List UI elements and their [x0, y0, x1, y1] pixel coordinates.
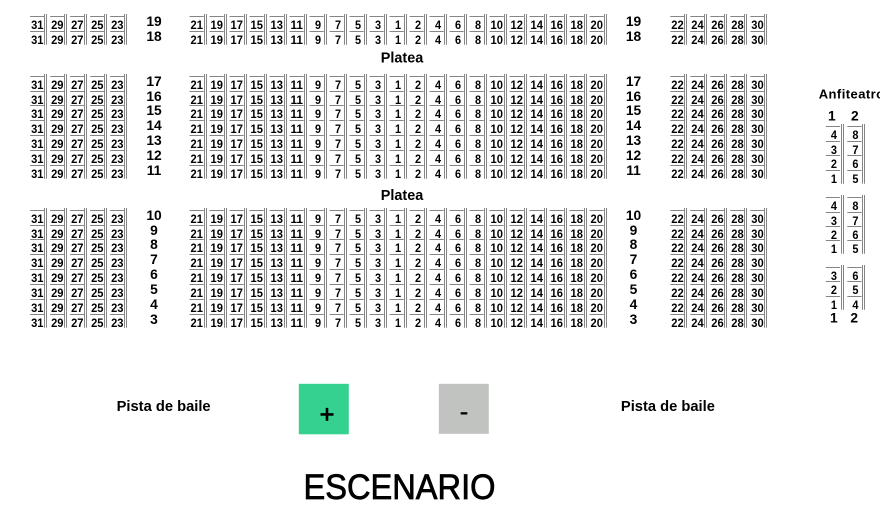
svg-text:2: 2 [415, 78, 421, 92]
svg-text:30: 30 [751, 256, 764, 270]
svg-text:22: 22 [671, 107, 684, 121]
svg-text:17: 17 [231, 286, 244, 300]
svg-text:4: 4 [435, 256, 441, 270]
svg-text:6: 6 [455, 227, 461, 241]
svg-text:25: 25 [91, 316, 104, 330]
svg-text:10: 10 [491, 152, 504, 166]
svg-text:14: 14 [531, 78, 544, 92]
svg-text:31: 31 [31, 167, 44, 181]
svg-text:31: 31 [31, 227, 44, 241]
svg-text:6: 6 [455, 93, 461, 107]
svg-text:17: 17 [231, 152, 244, 166]
svg-text:5: 5 [355, 271, 361, 285]
svg-text:25: 25 [91, 271, 104, 285]
svg-text:31: 31 [31, 33, 44, 47]
svg-text:12: 12 [511, 241, 524, 255]
svg-text:27: 27 [71, 137, 84, 151]
svg-text:2: 2 [415, 18, 421, 32]
svg-text:21: 21 [191, 33, 204, 47]
svg-text:24: 24 [691, 152, 704, 166]
svg-text:7: 7 [335, 18, 341, 32]
svg-text:16: 16 [551, 316, 564, 330]
svg-text:28: 28 [731, 33, 744, 47]
svg-text:4: 4 [435, 107, 441, 121]
svg-text:7: 7 [335, 167, 341, 181]
svg-text:21: 21 [191, 212, 204, 226]
svg-text:22: 22 [671, 316, 684, 330]
svg-text:30: 30 [751, 152, 764, 166]
svg-text:4: 4 [435, 227, 441, 241]
svg-text:31: 31 [31, 212, 44, 226]
svg-text:15: 15 [251, 167, 264, 181]
svg-text:19: 19 [211, 227, 224, 241]
svg-text:9: 9 [315, 122, 321, 136]
svg-text:18: 18 [571, 316, 584, 330]
svg-text:1: 1 [395, 152, 401, 166]
svg-text:23: 23 [111, 122, 124, 136]
svg-text:14: 14 [531, 122, 544, 136]
svg-text:15: 15 [251, 107, 264, 121]
svg-text:28: 28 [731, 107, 744, 121]
svg-text:8: 8 [475, 241, 481, 255]
svg-text:29: 29 [51, 107, 64, 121]
svg-text:23: 23 [111, 33, 124, 47]
svg-text:20: 20 [591, 212, 604, 226]
svg-text:27: 27 [71, 107, 84, 121]
svg-text:23: 23 [111, 316, 124, 330]
svg-text:11: 11 [291, 316, 304, 330]
svg-text:3: 3 [375, 78, 381, 92]
svg-text:27: 27 [71, 256, 84, 270]
svg-text:8: 8 [475, 286, 481, 300]
svg-text:12: 12 [626, 148, 642, 163]
svg-text:27: 27 [71, 93, 84, 107]
svg-text:13: 13 [271, 271, 284, 285]
svg-text:16: 16 [551, 256, 564, 270]
svg-text:24: 24 [691, 33, 704, 47]
svg-text:4: 4 [435, 286, 441, 300]
svg-text:12: 12 [511, 256, 524, 270]
svg-text:5: 5 [355, 316, 361, 330]
svg-text:18: 18 [571, 286, 584, 300]
svg-text:6: 6 [455, 152, 461, 166]
svg-text:2: 2 [415, 167, 421, 181]
svg-text:9: 9 [315, 241, 321, 255]
svg-text:24: 24 [691, 271, 704, 285]
svg-text:20: 20 [591, 286, 604, 300]
svg-text:16: 16 [626, 89, 642, 104]
svg-text:10: 10 [491, 93, 504, 107]
svg-text:17: 17 [231, 256, 244, 270]
svg-text:16: 16 [551, 212, 564, 226]
svg-text:20: 20 [591, 227, 604, 241]
svg-text:14: 14 [531, 301, 544, 315]
svg-text:14: 14 [531, 137, 544, 151]
svg-text:16: 16 [551, 286, 564, 300]
svg-text:27: 27 [71, 167, 84, 181]
svg-text:1: 1 [395, 167, 401, 181]
svg-text:18: 18 [571, 212, 584, 226]
svg-text:9: 9 [315, 167, 321, 181]
svg-text:27: 27 [71, 122, 84, 136]
svg-text:21: 21 [191, 152, 204, 166]
svg-text:5: 5 [355, 107, 361, 121]
svg-text:22: 22 [671, 33, 684, 47]
svg-text:11: 11 [291, 227, 304, 241]
svg-text:19: 19 [211, 78, 224, 92]
svg-text:3: 3 [831, 214, 837, 228]
svg-text:2: 2 [415, 241, 421, 255]
svg-text:15: 15 [251, 78, 264, 92]
svg-text:29: 29 [51, 93, 64, 107]
svg-text:29: 29 [51, 286, 64, 300]
svg-text:19: 19 [211, 122, 224, 136]
svg-text:6: 6 [455, 33, 461, 47]
svg-text:5: 5 [355, 137, 361, 151]
svg-text:23: 23 [111, 301, 124, 315]
svg-text:2: 2 [415, 122, 421, 136]
svg-text:1: 1 [395, 301, 401, 315]
svg-text:13: 13 [271, 301, 284, 315]
svg-text:5: 5 [355, 78, 361, 92]
svg-text:12: 12 [511, 107, 524, 121]
svg-text:19: 19 [146, 14, 162, 29]
svg-text:29: 29 [51, 316, 64, 330]
svg-text:31: 31 [31, 241, 44, 255]
svg-text:24: 24 [691, 167, 704, 181]
svg-text:4: 4 [435, 152, 441, 166]
svg-text:16: 16 [551, 301, 564, 315]
svg-text:5: 5 [355, 167, 361, 181]
svg-text:30: 30 [751, 122, 764, 136]
svg-text:1: 1 [828, 109, 836, 124]
svg-text:21: 21 [191, 241, 204, 255]
svg-text:8: 8 [475, 212, 481, 226]
svg-text:27: 27 [71, 33, 84, 47]
svg-text:12: 12 [511, 137, 524, 151]
svg-text:23: 23 [111, 241, 124, 255]
svg-text:12: 12 [511, 316, 524, 330]
svg-text:18: 18 [571, 78, 584, 92]
svg-text:11: 11 [291, 167, 304, 181]
svg-text:7: 7 [335, 137, 341, 151]
svg-text:8: 8 [475, 122, 481, 136]
svg-text:14: 14 [531, 316, 544, 330]
svg-text:30: 30 [751, 167, 764, 181]
svg-text:30: 30 [751, 212, 764, 226]
svg-text:6: 6 [852, 269, 858, 283]
svg-text:29: 29 [51, 152, 64, 166]
svg-text:31: 31 [31, 152, 44, 166]
svg-text:9: 9 [315, 18, 321, 32]
svg-text:19: 19 [211, 93, 224, 107]
svg-text:18: 18 [571, 301, 584, 315]
svg-text:18: 18 [571, 271, 584, 285]
svg-text:22: 22 [671, 286, 684, 300]
svg-text:19: 19 [211, 18, 224, 32]
svg-text:26: 26 [711, 78, 724, 92]
svg-text:30: 30 [751, 241, 764, 255]
svg-text:30: 30 [751, 78, 764, 92]
svg-text:19: 19 [626, 14, 642, 29]
svg-text:22: 22 [671, 122, 684, 136]
svg-text:Anfiteatro: Anfiteatro [819, 86, 880, 101]
svg-text:17: 17 [231, 227, 244, 241]
svg-text:31: 31 [31, 93, 44, 107]
svg-text:29: 29 [51, 122, 64, 136]
svg-text:31: 31 [31, 256, 44, 270]
svg-text:3: 3 [375, 286, 381, 300]
svg-text:16: 16 [551, 18, 564, 32]
svg-text:10: 10 [491, 301, 504, 315]
svg-text:8: 8 [852, 199, 858, 213]
svg-text:21: 21 [191, 256, 204, 270]
svg-text:3: 3 [831, 269, 837, 283]
svg-text:15: 15 [251, 122, 264, 136]
svg-text:6: 6 [150, 267, 158, 282]
svg-text:11: 11 [291, 137, 304, 151]
svg-text:11: 11 [626, 163, 641, 178]
svg-text:9: 9 [315, 271, 321, 285]
svg-text:17: 17 [231, 122, 244, 136]
svg-text:14: 14 [531, 227, 544, 241]
svg-text:6: 6 [455, 18, 461, 32]
svg-text:14: 14 [531, 167, 544, 181]
svg-text:3: 3 [375, 316, 381, 330]
svg-text:22: 22 [671, 152, 684, 166]
svg-text:7: 7 [852, 143, 858, 157]
svg-text:26: 26 [711, 227, 724, 241]
svg-text:5: 5 [852, 283, 858, 297]
svg-text:6: 6 [455, 301, 461, 315]
svg-text:31: 31 [31, 316, 44, 330]
svg-text:8: 8 [475, 93, 481, 107]
svg-text:21: 21 [191, 78, 204, 92]
svg-text:10: 10 [626, 208, 642, 223]
svg-text:12: 12 [511, 167, 524, 181]
svg-text:10: 10 [491, 316, 504, 330]
svg-text:2: 2 [415, 256, 421, 270]
svg-text:28: 28 [731, 212, 744, 226]
svg-text:11: 11 [291, 122, 304, 136]
svg-text:5: 5 [355, 33, 361, 47]
svg-text:5: 5 [355, 152, 361, 166]
svg-text:14: 14 [531, 241, 544, 255]
svg-text:25: 25 [91, 301, 104, 315]
svg-text:3: 3 [375, 271, 381, 285]
svg-text:9: 9 [150, 223, 158, 238]
svg-text:21: 21 [191, 137, 204, 151]
svg-text:31: 31 [31, 122, 44, 136]
svg-text:8: 8 [475, 33, 481, 47]
svg-text:1: 1 [395, 241, 401, 255]
svg-text:30: 30 [751, 286, 764, 300]
svg-text:19: 19 [211, 286, 224, 300]
svg-text:4: 4 [435, 18, 441, 32]
svg-text:20: 20 [591, 316, 604, 330]
svg-text:5: 5 [852, 242, 858, 256]
svg-text:7: 7 [335, 271, 341, 285]
svg-text:15: 15 [251, 33, 264, 47]
svg-text:11: 11 [291, 93, 304, 107]
svg-text:14: 14 [531, 107, 544, 121]
svg-text:6: 6 [455, 316, 461, 330]
svg-text:13: 13 [271, 316, 284, 330]
svg-text:3: 3 [375, 93, 381, 107]
svg-text:28: 28 [731, 167, 744, 181]
svg-text:26: 26 [711, 256, 724, 270]
svg-text:12: 12 [511, 93, 524, 107]
svg-text:2: 2 [415, 33, 421, 47]
svg-text:16: 16 [551, 33, 564, 47]
svg-text:15: 15 [251, 316, 264, 330]
svg-text:7: 7 [335, 152, 341, 166]
svg-text:25: 25 [91, 167, 104, 181]
svg-text:16: 16 [551, 78, 564, 92]
svg-text:28: 28 [731, 78, 744, 92]
svg-text:20: 20 [591, 33, 604, 47]
svg-text:29: 29 [51, 271, 64, 285]
svg-text:17: 17 [231, 78, 244, 92]
svg-text:9: 9 [315, 212, 321, 226]
svg-text:2: 2 [415, 212, 421, 226]
svg-text:28: 28 [731, 286, 744, 300]
svg-text:24: 24 [691, 227, 704, 241]
svg-text:20: 20 [591, 78, 604, 92]
svg-text:4: 4 [435, 137, 441, 151]
svg-text:8: 8 [630, 237, 638, 252]
svg-text:27: 27 [71, 301, 84, 315]
svg-text:26: 26 [711, 212, 724, 226]
svg-text:22: 22 [671, 256, 684, 270]
svg-text:6: 6 [455, 137, 461, 151]
svg-text:5: 5 [355, 18, 361, 32]
svg-text:10: 10 [491, 18, 504, 32]
svg-text:2: 2 [415, 316, 421, 330]
svg-text:15: 15 [251, 241, 264, 255]
svg-text:24: 24 [691, 316, 704, 330]
svg-text:26: 26 [711, 18, 724, 32]
svg-text:21: 21 [191, 167, 204, 181]
svg-text:14: 14 [531, 271, 544, 285]
svg-text:27: 27 [71, 241, 84, 255]
svg-text:27: 27 [71, 227, 84, 241]
svg-text:20: 20 [591, 271, 604, 285]
svg-text:23: 23 [111, 107, 124, 121]
svg-text:7: 7 [335, 316, 341, 330]
svg-text:25: 25 [91, 212, 104, 226]
svg-text:15: 15 [251, 137, 264, 151]
svg-text:15: 15 [251, 18, 264, 32]
svg-text:7: 7 [335, 241, 341, 255]
svg-text:5: 5 [355, 227, 361, 241]
svg-text:19: 19 [211, 167, 224, 181]
svg-text:25: 25 [91, 241, 104, 255]
svg-text:6: 6 [852, 157, 858, 171]
svg-text:16: 16 [551, 122, 564, 136]
svg-text:8: 8 [475, 18, 481, 32]
svg-text:10: 10 [491, 122, 504, 136]
svg-text:21: 21 [191, 93, 204, 107]
svg-text:8: 8 [475, 137, 481, 151]
svg-text:28: 28 [731, 301, 744, 315]
svg-text:3: 3 [375, 241, 381, 255]
svg-text:30: 30 [751, 301, 764, 315]
svg-text:20: 20 [591, 152, 604, 166]
svg-text:9: 9 [630, 223, 638, 238]
svg-text:30: 30 [751, 33, 764, 47]
svg-text:15: 15 [251, 271, 264, 285]
svg-text:26: 26 [711, 301, 724, 315]
svg-text:15: 15 [251, 256, 264, 270]
svg-text:3: 3 [375, 227, 381, 241]
svg-text:3: 3 [375, 167, 381, 181]
svg-text:14: 14 [531, 18, 544, 32]
svg-text:9: 9 [315, 227, 321, 241]
svg-text:13: 13 [271, 212, 284, 226]
svg-text:7: 7 [630, 252, 638, 267]
svg-text:27: 27 [71, 78, 84, 92]
svg-text:10: 10 [491, 241, 504, 255]
svg-text:6: 6 [455, 256, 461, 270]
svg-text:14: 14 [626, 118, 642, 133]
svg-text:7: 7 [335, 286, 341, 300]
svg-text:11: 11 [291, 256, 304, 270]
svg-text:14: 14 [531, 152, 544, 166]
svg-text:8: 8 [475, 78, 481, 92]
svg-text:4: 4 [831, 199, 837, 213]
svg-text:23: 23 [111, 137, 124, 151]
svg-text:20: 20 [591, 107, 604, 121]
svg-text:28: 28 [731, 137, 744, 151]
svg-text:30: 30 [751, 227, 764, 241]
svg-text:12: 12 [511, 18, 524, 32]
svg-text:17: 17 [231, 33, 244, 47]
svg-text:19: 19 [211, 271, 224, 285]
svg-text:15: 15 [251, 152, 264, 166]
svg-text:19: 19 [211, 301, 224, 315]
svg-text:29: 29 [51, 241, 64, 255]
svg-text:3: 3 [630, 312, 638, 327]
svg-text:11: 11 [291, 271, 304, 285]
svg-text:23: 23 [111, 18, 124, 32]
svg-text:28: 28 [731, 256, 744, 270]
svg-text:27: 27 [71, 18, 84, 32]
svg-text:13: 13 [271, 18, 284, 32]
svg-text:8: 8 [475, 316, 481, 330]
svg-text:23: 23 [111, 212, 124, 226]
svg-text:12: 12 [511, 301, 524, 315]
svg-text:29: 29 [51, 167, 64, 181]
svg-text:3: 3 [150, 312, 158, 327]
svg-text:18: 18 [626, 29, 642, 44]
svg-text:13: 13 [271, 107, 284, 121]
svg-text:2: 2 [831, 283, 837, 297]
svg-text:25: 25 [91, 137, 104, 151]
svg-text:17: 17 [231, 18, 244, 32]
svg-text:18: 18 [571, 107, 584, 121]
svg-text:3: 3 [375, 152, 381, 166]
svg-text:7: 7 [335, 107, 341, 121]
svg-text:8: 8 [852, 128, 858, 142]
svg-text:7: 7 [335, 78, 341, 92]
svg-text:24: 24 [691, 301, 704, 315]
svg-text:21: 21 [191, 301, 204, 315]
svg-text:2: 2 [850, 311, 858, 326]
svg-text:4: 4 [435, 122, 441, 136]
svg-text:17: 17 [231, 137, 244, 151]
svg-text:29: 29 [51, 301, 64, 315]
